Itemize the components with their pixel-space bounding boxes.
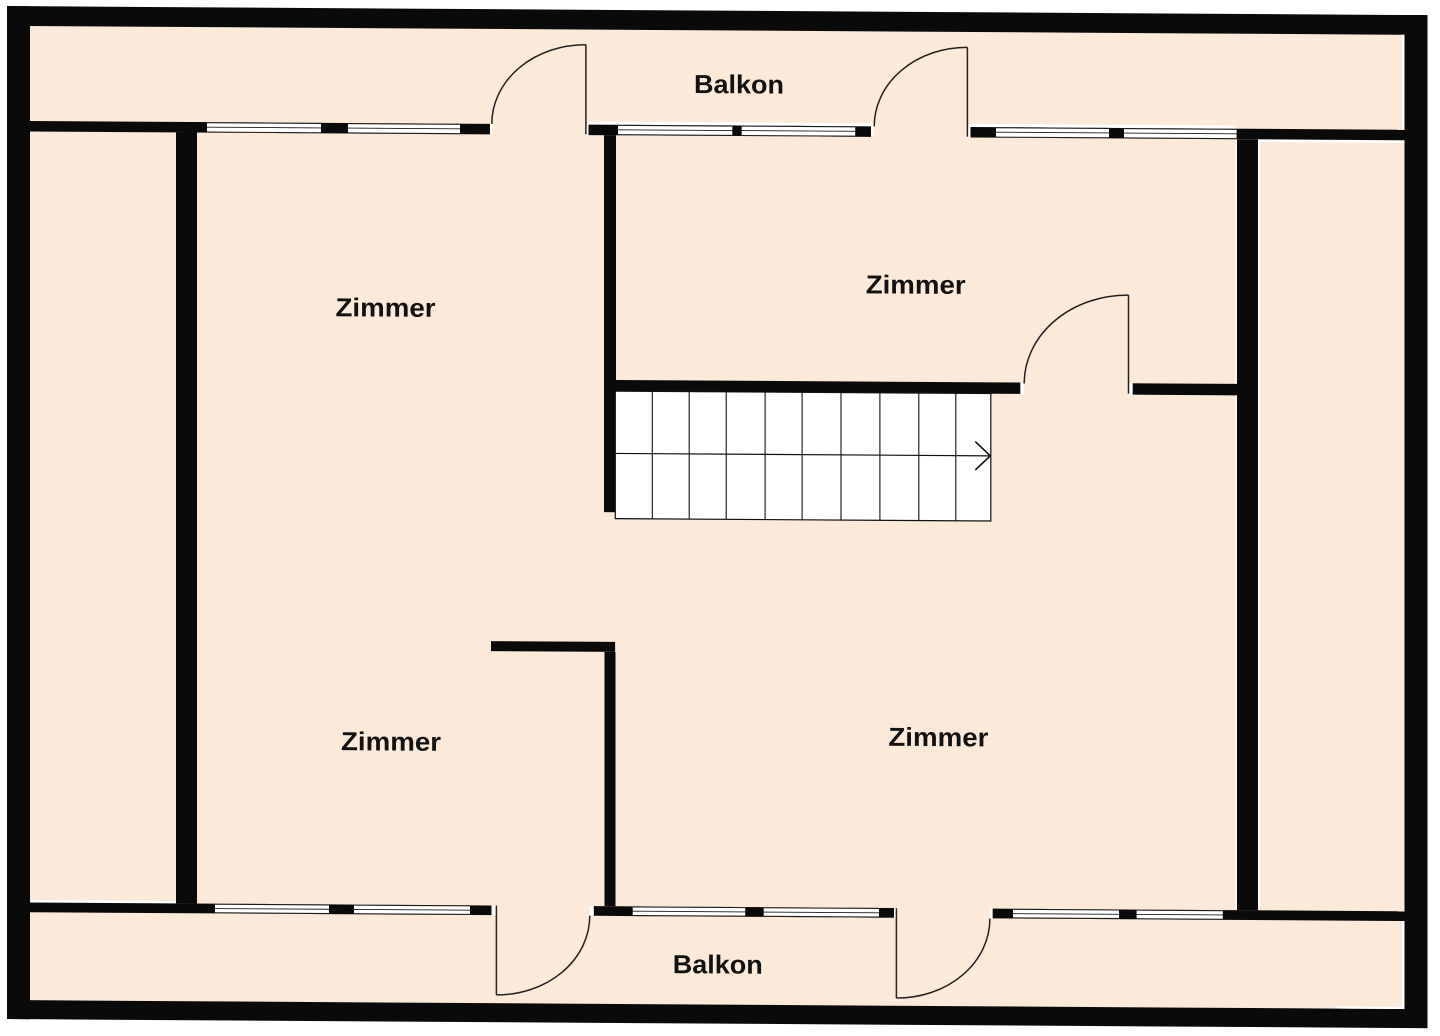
svg-text:Zimmer: Zimmer [866,269,966,300]
svg-text:Zimmer: Zimmer [336,292,436,323]
svg-text:Zimmer: Zimmer [888,722,988,753]
svg-text:Zimmer: Zimmer [341,726,441,757]
svg-text:Balkon: Balkon [673,949,763,980]
svg-text:Balkon: Balkon [694,69,784,100]
